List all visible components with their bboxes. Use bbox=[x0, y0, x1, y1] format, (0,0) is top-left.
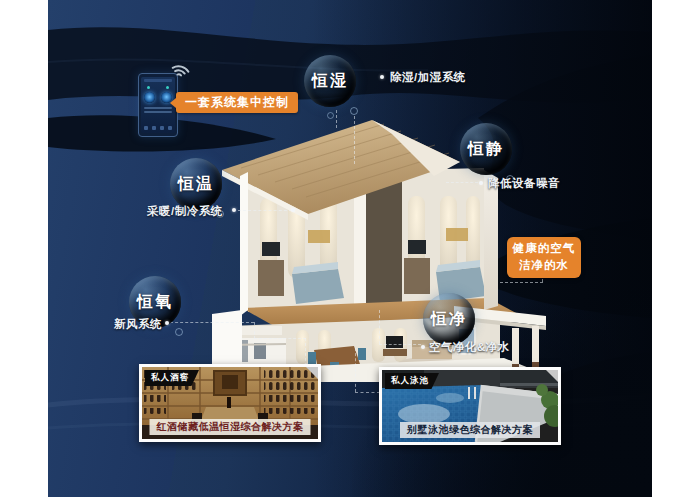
connector-hengyang-h1 bbox=[170, 322, 254, 323]
poster-canvas: 一套系统集中控制 健康的空气 洁净的水 恒湿 除湿/加湿系统 恒静 降低设备噪音… bbox=[0, 0, 700, 497]
connector-dot bbox=[479, 181, 483, 185]
pool-photo: 私人泳池 别墅泳池绿色综合解决方案 bbox=[382, 370, 558, 442]
phone-dial-knob bbox=[144, 92, 155, 103]
sub-label-purify: 空气净化&净水 bbox=[429, 340, 510, 355]
phone-titlebar bbox=[144, 79, 172, 82]
connector-pool-h bbox=[355, 392, 380, 393]
sub-label-dehumidify: 除湿/加湿系统 bbox=[390, 70, 466, 85]
bubble-hengjing-quiet: 恒静 bbox=[460, 123, 512, 175]
connector-hengjing2-v bbox=[379, 310, 380, 344]
sub-label-hvac: 采暖/制冷系统 bbox=[147, 204, 223, 219]
connector-dot bbox=[291, 208, 295, 212]
connector-hengjing bbox=[446, 182, 478, 183]
connector-dot bbox=[380, 75, 384, 79]
healthy-callout-line2: 洁净的水 bbox=[507, 257, 581, 274]
wine-card-badge: 私人酒窖 bbox=[145, 370, 199, 386]
connector-dot bbox=[232, 208, 236, 212]
bubble-hengjing-clean: 恒净 bbox=[423, 293, 475, 345]
phone-readout-line bbox=[144, 111, 172, 113]
phone-readout-line bbox=[144, 107, 172, 109]
pool-card-badge: 私人泳池 bbox=[385, 373, 439, 389]
bubble-hengwen: 恒温 bbox=[170, 158, 222, 210]
bubble-label: 恒氧 bbox=[137, 292, 173, 313]
card-corner-fold bbox=[546, 370, 558, 382]
bubble-label: 恒净 bbox=[431, 309, 467, 330]
pool-card: 私人泳池 别墅泳池绿色综合解决方案 bbox=[379, 367, 561, 445]
connector-phone-to-roof bbox=[354, 116, 355, 164]
control-callout-label: 一套系统集中控制 bbox=[185, 95, 289, 109]
healthy-callout: 健康的空气 洁净的水 bbox=[507, 237, 581, 278]
connector-hengjing2-h bbox=[379, 344, 421, 345]
connector-hengwen bbox=[238, 210, 292, 211]
sub-label-freshair: 新风系统 bbox=[114, 317, 162, 332]
poster-stage: 一套系统集中控制 健康的空气 洁净的水 恒湿 除湿/加湿系统 恒静 降低设备噪音… bbox=[48, 0, 652, 497]
phone-indicator-dot bbox=[147, 86, 150, 89]
phone-app-row bbox=[144, 126, 172, 130]
healthy-callout-line1: 健康的空气 bbox=[507, 240, 581, 257]
wine-cellar-photo: 私人酒窖 红酒储藏低温恒湿综合解决方案 bbox=[142, 367, 318, 439]
connector-hengyang-v2 bbox=[305, 338, 306, 366]
wine-cellar-card: 私人酒窖 红酒储藏低温恒湿综合解决方案 bbox=[139, 364, 321, 442]
connector-pool-v bbox=[355, 348, 356, 392]
connector-hengyang-v1 bbox=[254, 322, 255, 339]
connector-hengshi bbox=[336, 110, 337, 128]
sub-label-noise: 降低设备噪音 bbox=[488, 176, 560, 191]
control-callout: 一套系统集中控制 bbox=[176, 92, 298, 113]
wine-card-caption: 红酒储藏低温恒湿综合解决方案 bbox=[150, 419, 311, 435]
card-corner-fold bbox=[306, 367, 318, 379]
bubble-label: 恒静 bbox=[468, 139, 504, 160]
phone-indicator-dot bbox=[166, 86, 169, 89]
bubble-label: 恒湿 bbox=[312, 71, 348, 92]
connector-hengyang-h2 bbox=[254, 338, 306, 339]
connector-dot bbox=[421, 345, 425, 349]
bubble-ring-small bbox=[327, 112, 334, 119]
bubble-hengshi: 恒湿 bbox=[304, 55, 356, 107]
bubble-label: 恒温 bbox=[178, 174, 214, 195]
connector-healthy-h bbox=[500, 282, 543, 283]
pool-card-caption: 别墅泳池绿色综合解决方案 bbox=[400, 422, 540, 438]
connector-dot bbox=[165, 321, 169, 325]
